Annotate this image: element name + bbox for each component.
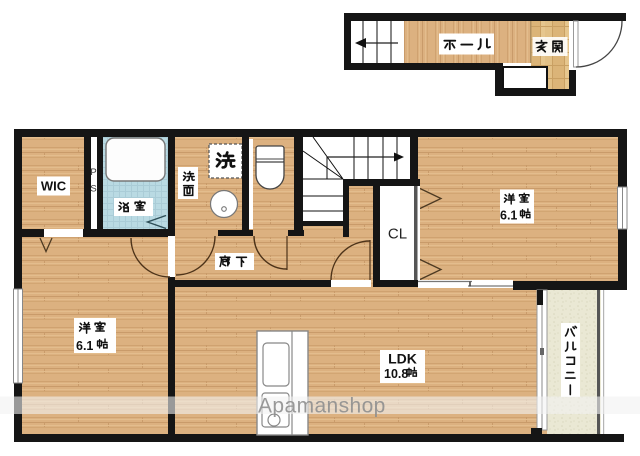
svg-text:6.1: 6.1 bbox=[500, 209, 517, 223]
svg-text:WIC: WIC bbox=[41, 179, 67, 194]
svg-text:10.8: 10.8 bbox=[384, 367, 408, 381]
svg-text:Apamanshop: Apamanshop bbox=[258, 395, 386, 418]
svg-text:6.1: 6.1 bbox=[76, 339, 93, 353]
svg-text:S: S bbox=[90, 184, 96, 195]
svg-text:CL: CL bbox=[388, 226, 407, 243]
svg-text:LDK: LDK bbox=[388, 351, 417, 367]
svg-text:P: P bbox=[90, 167, 96, 178]
